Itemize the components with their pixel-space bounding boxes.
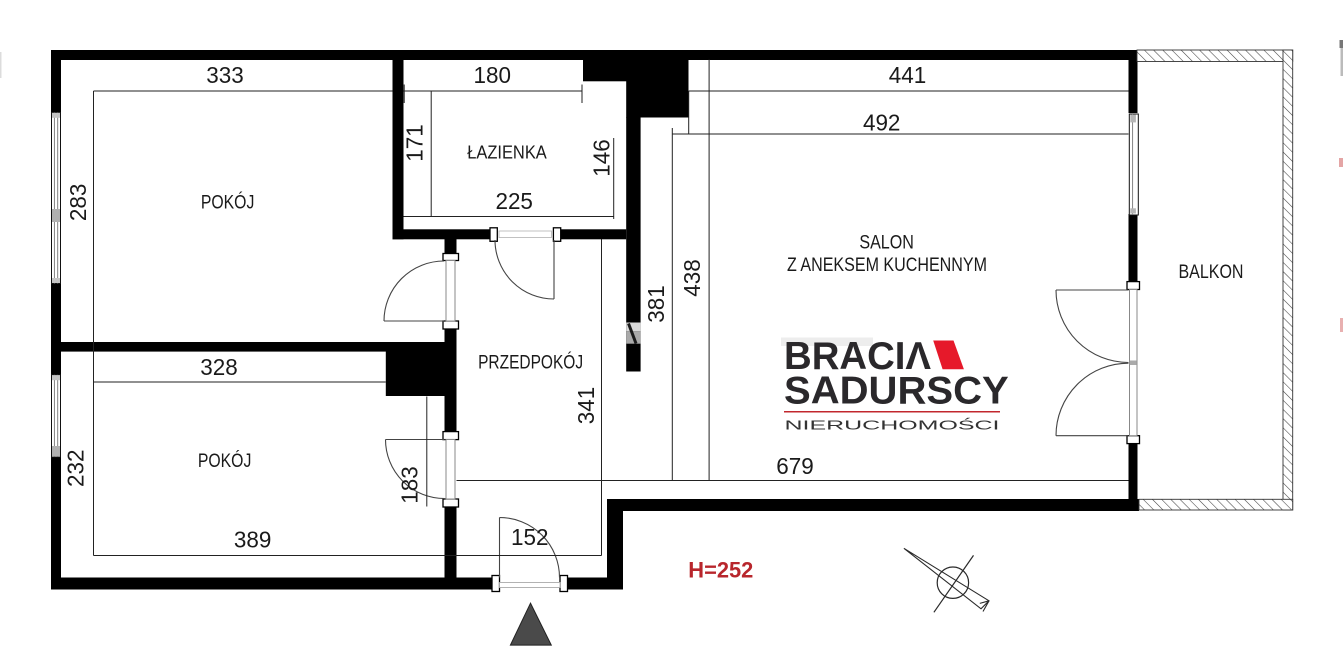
svg-text:PRZEDPOKÓJ: PRZEDPOKÓJ bbox=[478, 352, 583, 374]
svg-text:438: 438 bbox=[679, 259, 705, 297]
svg-text:679: 679 bbox=[776, 453, 814, 479]
svg-text:NIERUCHOMOŚCI: NIERUCHOMOŚCI bbox=[785, 417, 1000, 432]
svg-text:225: 225 bbox=[495, 188, 533, 214]
svg-text:328: 328 bbox=[200, 354, 238, 380]
svg-text:492: 492 bbox=[863, 109, 901, 135]
svg-text:441: 441 bbox=[889, 62, 927, 88]
svg-text:H=252: H=252 bbox=[688, 558, 753, 583]
svg-text:333: 333 bbox=[206, 62, 244, 88]
svg-text:POKÓJ: POKÓJ bbox=[201, 192, 255, 214]
svg-text:BALKON: BALKON bbox=[1179, 262, 1244, 283]
svg-text:389: 389 bbox=[234, 527, 272, 553]
svg-text:381: 381 bbox=[643, 285, 669, 323]
svg-text:POKÓJ: POKÓJ bbox=[198, 450, 252, 472]
svg-text:183: 183 bbox=[396, 466, 422, 504]
svg-text:Z ANEKSEM KUCHENNYM: Z ANEKSEM KUCHENNYM bbox=[787, 255, 987, 276]
svg-text:232: 232 bbox=[62, 450, 88, 488]
svg-text:ŁAZIENKA: ŁAZIENKA bbox=[467, 143, 547, 163]
svg-text:146: 146 bbox=[588, 139, 614, 177]
svg-text:SADURSCY: SADURSCY bbox=[784, 369, 1009, 412]
svg-text:341: 341 bbox=[573, 387, 599, 425]
svg-text:180: 180 bbox=[474, 62, 512, 88]
svg-text:SALON: SALON bbox=[859, 233, 914, 254]
svg-text:152: 152 bbox=[511, 524, 549, 550]
svg-text:283: 283 bbox=[65, 184, 91, 222]
svg-text:171: 171 bbox=[401, 124, 427, 162]
